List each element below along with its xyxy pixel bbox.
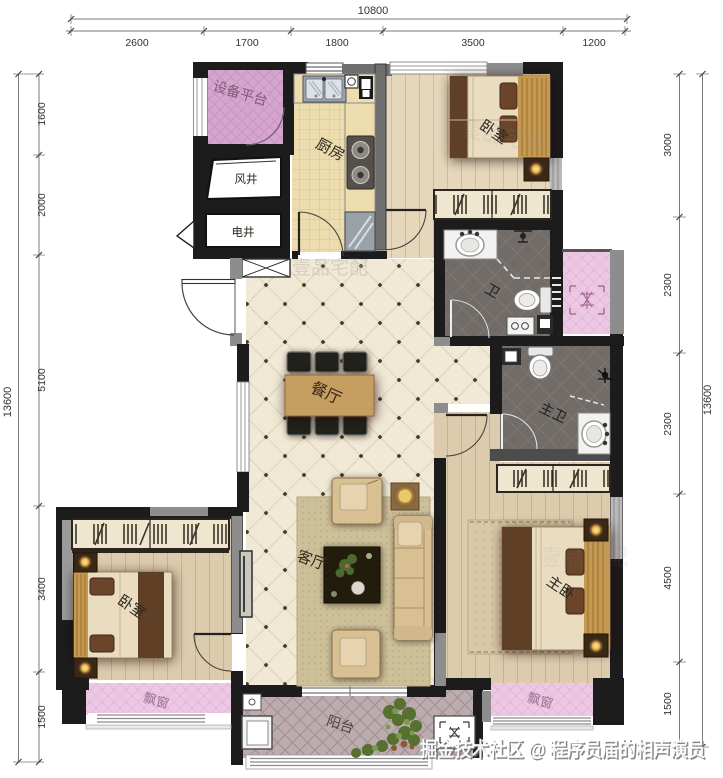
- svg-text:3500: 3500: [461, 37, 485, 49]
- svg-text:1500: 1500: [662, 692, 674, 716]
- svg-text:3400: 3400: [36, 577, 48, 601]
- svg-text:10800: 10800: [358, 5, 389, 17]
- svg-text:风井: 风井: [235, 172, 258, 186]
- svg-text:2300: 2300: [662, 412, 674, 436]
- svg-text:3000: 3000: [662, 133, 674, 157]
- svg-text:壹品宅配: 壹品宅配: [540, 545, 628, 570]
- svg-text:1700: 1700: [235, 37, 259, 49]
- svg-text:1800: 1800: [325, 37, 349, 49]
- svg-text:13600: 13600: [2, 387, 14, 418]
- svg-text:2300: 2300: [662, 273, 674, 297]
- svg-text:13600: 13600: [702, 385, 714, 416]
- svg-text:4500: 4500: [662, 566, 674, 590]
- svg-text:电井: 电井: [232, 225, 255, 239]
- svg-text:5100: 5100: [36, 368, 48, 392]
- svg-text:2600: 2600: [125, 37, 149, 49]
- svg-text:1500: 1500: [36, 705, 48, 729]
- svg-text:1200: 1200: [582, 37, 606, 49]
- svg-text:掘金技术社区 @ 程序员届的相声演员: 掘金技术社区 @ 程序员届的相声演员: [420, 737, 705, 761]
- svg-text:壹品宅配: 壹品宅配: [292, 257, 368, 279]
- svg-text:2000: 2000: [36, 193, 48, 217]
- svg-text:1600: 1600: [36, 102, 48, 126]
